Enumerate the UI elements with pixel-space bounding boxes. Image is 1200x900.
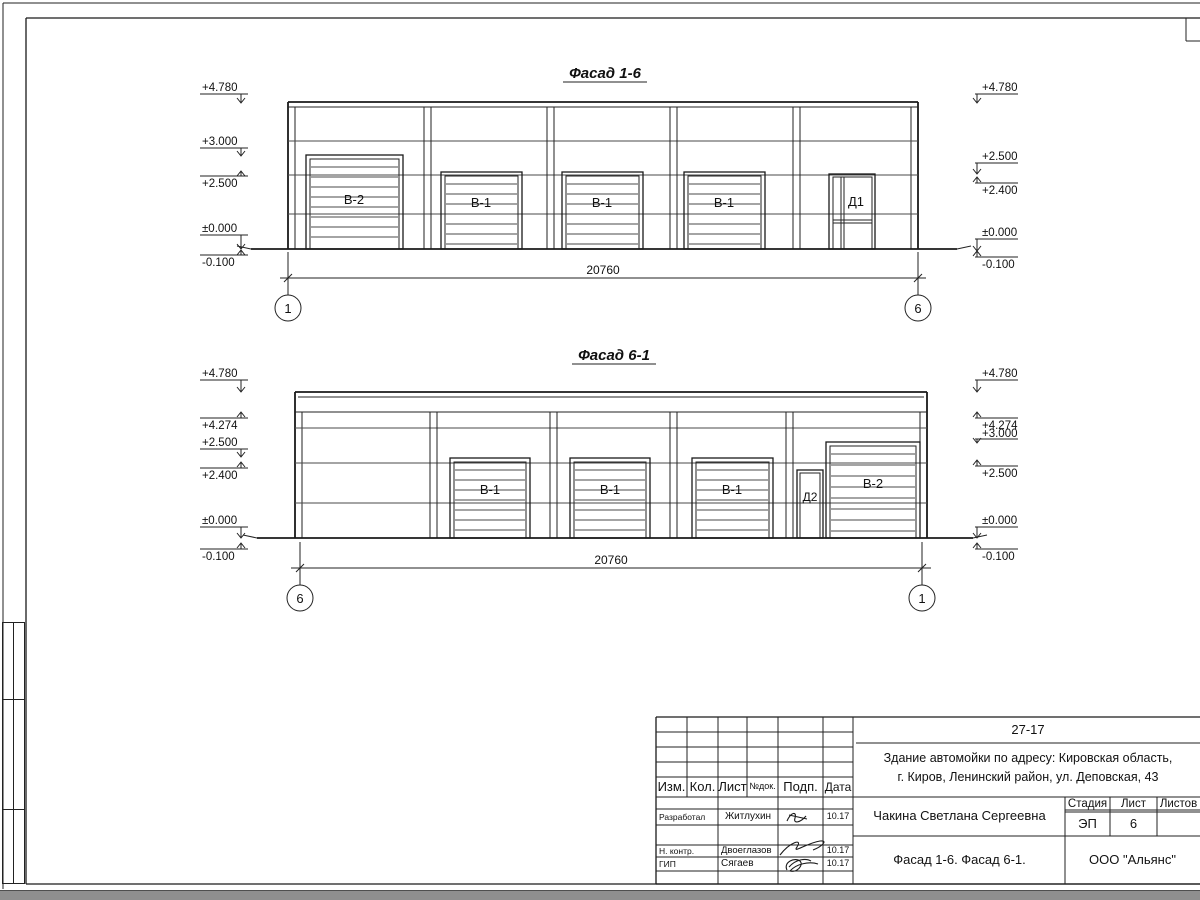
side-cell-divider [13, 623, 14, 699]
svg-text:6: 6 [914, 301, 921, 316]
col-header-list: Лист [718, 777, 747, 797]
elevation-marks-left: +4.780 +3.000 +2.500 ±0.000 -0.100 [200, 82, 248, 269]
elevation-marks-right: +4.780 +2.500 +2.400 ±0.000 -0.100 [973, 82, 1018, 271]
svg-text:1: 1 [284, 301, 291, 316]
door-d2-label: Д2 [803, 490, 818, 504]
svg-text:+2.500: +2.500 [202, 178, 238, 190]
svg-text:-0.100: -0.100 [982, 551, 1015, 563]
gate-v1-a: В-1 [441, 172, 522, 249]
grid-axis-1: 1 [275, 295, 301, 321]
facade-6-1-title: Фасад 6-1 [578, 347, 650, 364]
svg-text:±0.000: ±0.000 [982, 515, 1017, 527]
svg-text:±0.000: ±0.000 [202, 515, 237, 527]
svg-text:+4.274: +4.274 [202, 420, 238, 432]
dimension: 20760 [280, 252, 926, 295]
door-d1-label: Д1 [848, 194, 864, 209]
signature-razrabotal [787, 813, 807, 822]
scan-edge-band [0, 890, 1200, 900]
row-date: 10.17 [823, 857, 853, 871]
elevation-marks-right: +4.780 +4.274 +3.000 +2.500 ±0.000 -0.10… [973, 368, 1018, 563]
side-cell-label: Подп. и дата [2, 750, 6, 771]
parapet-band [288, 107, 918, 249]
gate-v1-c: В-1 [684, 172, 765, 249]
row-role: Разработал [657, 809, 717, 825]
row-date: 10.17 [823, 809, 853, 825]
side-cell-podp: Подп. и дата [2, 699, 25, 810]
sheets-total [1157, 812, 1200, 836]
gate-v1-a-label: В-1 [471, 195, 491, 210]
side-cell-label: Взам. инв. № [2, 657, 6, 678]
svg-text:+4.780: +4.780 [202, 82, 238, 94]
svg-text:+3.000: +3.000 [982, 428, 1018, 440]
gate-v1-b-label: В-1 [592, 195, 612, 210]
sheet-number: 6 [1110, 812, 1157, 836]
grid-axis-1: 1 [909, 585, 935, 611]
side-cell-label: Инв. № подл. [2, 842, 6, 863]
side-cell-divider [13, 700, 14, 809]
project-name-line2: г. Киров, Ленинский район, ул. Деповская… [858, 767, 1198, 789]
signature-nkontr [780, 841, 824, 855]
gate-v1-c: В-1 [692, 458, 773, 538]
top-right-stamp-box [1186, 18, 1200, 41]
door-d2: Д2 [797, 470, 823, 538]
gate-v1-a: В-1 [450, 458, 530, 538]
client-name: Чакина Светлана Сергеевна [856, 797, 1063, 836]
gate-v1-b: В-1 [570, 458, 650, 538]
svg-text:±0.000: ±0.000 [202, 223, 237, 235]
sheet-title: Фасад 1-6. Фасад 6-1. [856, 836, 1063, 884]
stage-value: ЭП [1065, 812, 1110, 836]
parapet-band [295, 397, 927, 538]
svg-text:6: 6 [296, 591, 303, 606]
sheet-label: Лист [1110, 797, 1157, 812]
organization: ООО "Альянс" [1065, 836, 1200, 884]
grid-axis-6: 6 [905, 295, 931, 321]
side-attribute-column: Взам. инв. № Подп. и дата Инв. № подл. [2, 622, 26, 884]
dimension: 20760 [291, 542, 931, 585]
side-cell-divider [13, 810, 14, 883]
svg-text:+2.500: +2.500 [202, 437, 238, 449]
side-cell-inv: Инв. № подл. [2, 809, 25, 884]
dimension-value: 20760 [586, 263, 620, 277]
stage-label: Стадия [1065, 797, 1110, 812]
col-header-podp: Подп. [778, 777, 823, 797]
svg-text:+2.400: +2.400 [982, 185, 1018, 197]
pilasters [424, 107, 800, 249]
gate-v1-b-label: В-1 [600, 482, 620, 497]
gate-v2-label: В-2 [863, 476, 883, 491]
svg-text:+4.780: +4.780 [202, 368, 238, 380]
signature-gip [786, 859, 818, 871]
row-name: Двоеглазов [719, 845, 779, 857]
side-cell-vzam: Взам. инв. № [2, 622, 25, 700]
col-header-data: Дата [823, 777, 853, 797]
dimension-value: 20760 [594, 553, 628, 567]
gate-v1-a-label: В-1 [480, 482, 500, 497]
svg-text:+4.780: +4.780 [982, 368, 1018, 380]
facade-6-1-drawing: Фасад 6-1 В-1 В-1 В-1 [185, 335, 1085, 635]
row-date: 10.17 [823, 845, 853, 857]
row-name: Сягаев [719, 857, 779, 871]
svg-text:+3.000: +3.000 [202, 136, 238, 148]
drawing-sheet: Фасад 1-6 В-2 В-1 В-1 [0, 0, 1200, 900]
svg-text:±0.000: ±0.000 [982, 227, 1017, 239]
col-header-ndok: №док. [747, 777, 778, 797]
gate-v1-c-label: В-1 [714, 195, 734, 210]
title-block: 27-17 Здание автомойки по адресу: Кировс… [650, 715, 1200, 890]
grid-axis-6: 6 [287, 585, 313, 611]
svg-text:+2.400: +2.400 [202, 470, 238, 482]
door-d1: Д1 [829, 174, 875, 249]
row-name: Житлухин [718, 809, 778, 825]
gate-v2: В-2 [826, 442, 920, 538]
svg-text:+2.500: +2.500 [982, 151, 1018, 163]
svg-text:1: 1 [918, 591, 925, 606]
col-header-izm: Изм. [656, 777, 687, 797]
gate-v1-b: В-1 [562, 172, 643, 249]
gate-v2: В-2 [306, 155, 403, 249]
sheets-label: Листов [1157, 797, 1200, 812]
doc-number: 27-17 [856, 719, 1200, 741]
facade-1-6-title: Фасад 1-6 [569, 65, 642, 82]
svg-text:+4.780: +4.780 [982, 82, 1018, 94]
svg-text:-0.100: -0.100 [982, 259, 1015, 271]
row-role: ГИП [657, 857, 717, 871]
pilasters [430, 412, 793, 538]
facade-1-6-drawing: Фасад 1-6 В-2 В-1 В-1 [185, 55, 1085, 325]
svg-text:-0.100: -0.100 [202, 257, 235, 269]
gate-v1-c-label: В-1 [722, 482, 742, 497]
row-role: Н. контр. [657, 845, 717, 857]
svg-text:+2.500: +2.500 [982, 468, 1018, 480]
svg-text:-0.100: -0.100 [202, 551, 235, 563]
col-header-kol: Кол. [687, 777, 718, 797]
elevation-marks-left: +4.780 +4.274 +2.500 +2.400 ±0.000 -0.10… [200, 368, 248, 563]
gate-v2-label: В-2 [344, 192, 364, 207]
